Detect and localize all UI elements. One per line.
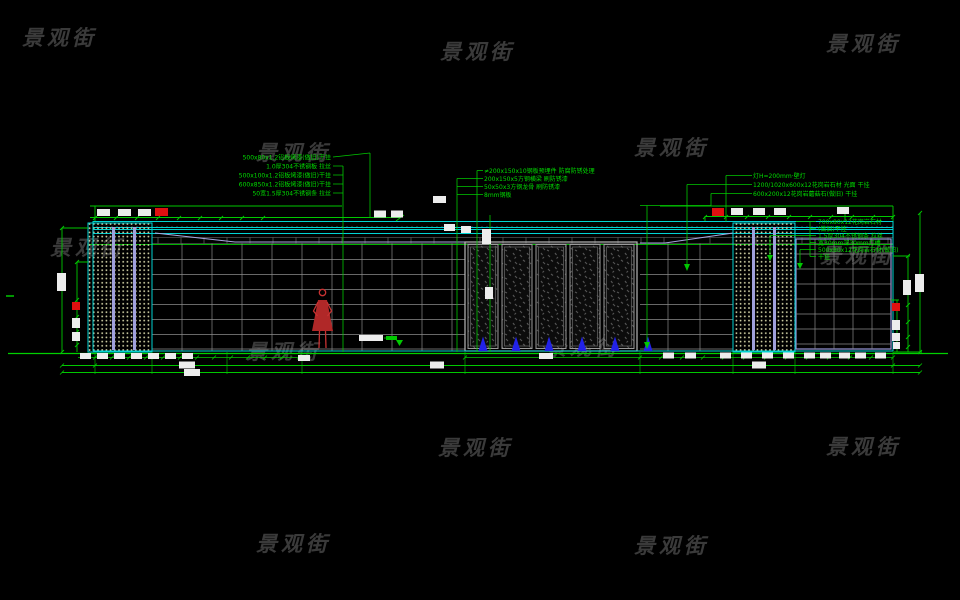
annotation-right: 灯H=200mm·壁灯 1200/1020x600x12花岗岩石材 光面 干挂 … <box>753 172 870 198</box>
wall-grid-left <box>152 244 465 352</box>
annotation-text: 8mm钢板 <box>484 191 512 199</box>
pillar-left <box>88 223 152 352</box>
elevation-drawing: 500x80x1.2铝板烤漆(做旧)干挂 1.0厚304不锈钢板 拉丝 500x… <box>0 0 960 600</box>
person-figure <box>312 289 333 348</box>
annotation-text: 500x80x1.2铝板烤漆(做旧)干挂 <box>243 154 331 162</box>
annotation-text: 50宽1.5厚304不锈钢条 拉丝 <box>252 190 331 198</box>
annotation-left: 500x80x1.2铝板烤漆(做旧)干挂 1.0厚304不锈钢板 拉丝 500x… <box>239 154 331 198</box>
top-dim-text <box>97 207 849 218</box>
awning-edge <box>155 233 733 243</box>
annotation-text: 700x80x12花岗岩石材 <box>818 218 882 226</box>
pillar-right <box>733 223 795 352</box>
annotation-text: 干挂 <box>818 253 830 261</box>
annotation-text: ≠200x150x10钢板预埋件 防腐防锈处理 <box>484 167 595 175</box>
wall-grid-mid <box>640 244 733 352</box>
annotation-text: 1200/1020x600x12花岗岩石材 光面 干挂 <box>753 181 870 189</box>
ground-label <box>359 335 403 346</box>
annotation-text: 灯H=200mm·壁灯 <box>753 172 806 180</box>
cad-canvas: 景观街 景观街 景观街 景观街 景观街 景观街 景观街 景观街 景观街 景观街 … <box>0 0 960 600</box>
annotation-text: 500x100x1.2铝板烤漆(做旧)干挂 <box>239 172 331 180</box>
annotation-text: 500x80x12花岗岩石材(做旧) <box>818 246 899 254</box>
annotation-text: 600x850x1.2铝板烤漆(做旧)干挂 <box>239 181 331 189</box>
annotation-text: 600x200x12花岗岩蘑菇石(做旧) 干挂 <box>753 190 857 198</box>
annotation-text: 200x150x5方钢横梁 刷防锈漆 <box>484 175 568 183</box>
annotation-text: 1.0厚304不锈钢板 拉丝 <box>266 163 331 171</box>
annotation-middle: ≠200x150x10钢板预埋件 防腐防锈处理 200x150x5方钢横梁 刷防… <box>484 167 595 199</box>
annotation-text: 宽30mm深30mm灯槽 <box>818 239 881 247</box>
annotation-text: 1.5厚304不锈钢条 拉丝 <box>818 232 883 240</box>
annotation-text: 50x50x3方钢龙骨 刷防锈漆 <box>484 183 560 191</box>
annotation-text: (做旧)干挂 <box>818 225 847 233</box>
